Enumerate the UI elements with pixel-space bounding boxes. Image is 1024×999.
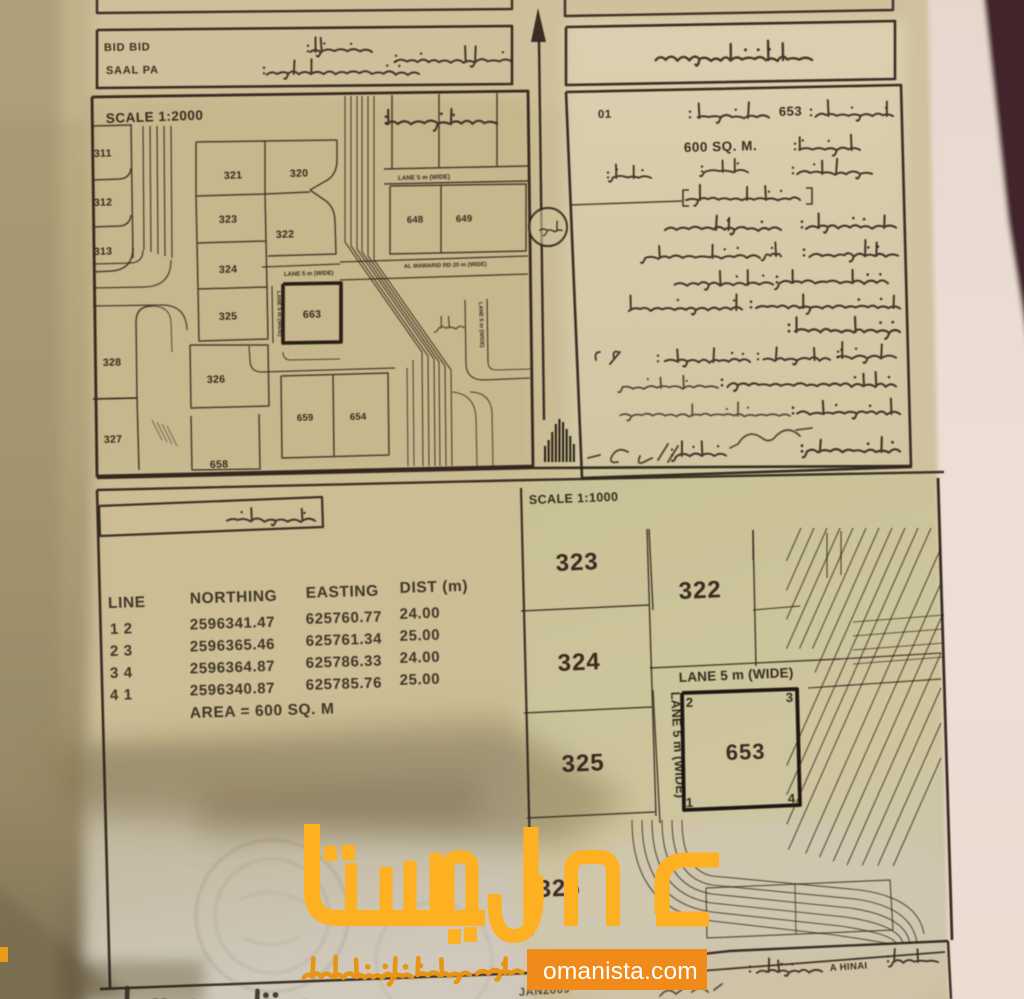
svg-text:653: 653 — [725, 739, 766, 765]
svg-text:600 SQ. M.: 600 SQ. M. — [684, 138, 758, 155]
svg-text:625786.33: 625786.33 — [305, 652, 382, 671]
svg-text:2596365.46: 2596365.46 — [190, 636, 276, 656]
svg-text:313: 313 — [94, 245, 113, 258]
svg-text:325: 325 — [561, 749, 605, 778]
svg-text:4 1: 4 1 — [110, 686, 133, 704]
svg-text:2596340.87: 2596340.87 — [190, 680, 276, 700]
svg-text:625785.76: 625785.76 — [305, 674, 382, 693]
svg-text:omanista.com: omanista.com — [543, 958, 698, 985]
svg-text:1 2: 1 2 — [110, 620, 133, 638]
svg-text:658: 658 — [210, 458, 229, 471]
svg-text:326: 326 — [207, 373, 226, 386]
svg-text:659: 659 — [297, 412, 314, 424]
svg-text:311: 311 — [94, 147, 112, 160]
svg-text:324: 324 — [219, 263, 238, 276]
svg-text:2 3: 2 3 — [110, 642, 133, 660]
svg-text:322: 322 — [276, 228, 295, 241]
svg-text:DIST (m): DIST (m) — [399, 578, 468, 597]
svg-text:01: 01 — [598, 109, 612, 121]
svg-text:LANE 5 m (WIDE): LANE 5 m (WIDE) — [398, 174, 450, 182]
svg-text:24.00: 24.00 — [399, 605, 440, 623]
svg-text:3: 3 — [786, 690, 794, 705]
svg-text:328: 328 — [103, 356, 122, 369]
svg-text:SAAL PA: SAAL PA — [106, 64, 159, 77]
svg-text:2596364.87: 2596364.87 — [190, 658, 276, 678]
svg-text:312: 312 — [94, 196, 113, 209]
svg-text:322: 322 — [678, 576, 722, 605]
svg-text:3 4: 3 4 — [110, 664, 133, 682]
svg-text:324: 324 — [557, 648, 601, 677]
svg-text:25.00: 25.00 — [399, 671, 440, 689]
svg-text:321: 321 — [224, 169, 243, 182]
svg-text:663: 663 — [303, 308, 322, 321]
svg-text:LINE: LINE — [108, 594, 146, 612]
svg-text:1: 1 — [686, 795, 694, 810]
svg-text:654: 654 — [350, 411, 367, 423]
svg-text:NORTHING: NORTHING — [190, 588, 278, 608]
svg-text:625761.34: 625761.34 — [305, 630, 382, 649]
svg-text:653: 653 — [779, 103, 803, 119]
svg-text:323: 323 — [555, 548, 599, 577]
svg-text:648: 648 — [407, 214, 424, 226]
svg-text:2596341.47: 2596341.47 — [190, 614, 276, 634]
svg-text:25.00: 25.00 — [399, 627, 440, 645]
svg-text:2: 2 — [686, 695, 694, 710]
svg-text:24.00: 24.00 — [399, 649, 440, 667]
svg-text:BID BID: BID BID — [104, 41, 151, 54]
svg-text:323: 323 — [219, 213, 238, 226]
svg-text:327: 327 — [104, 433, 123, 446]
svg-text:649: 649 — [456, 213, 473, 225]
svg-text:320: 320 — [290, 167, 309, 180]
svg-text:625760.77: 625760.77 — [305, 608, 382, 627]
svg-text:4: 4 — [788, 791, 797, 806]
svg-text:EASTING: EASTING — [305, 583, 379, 602]
svg-text:325: 325 — [219, 310, 238, 323]
